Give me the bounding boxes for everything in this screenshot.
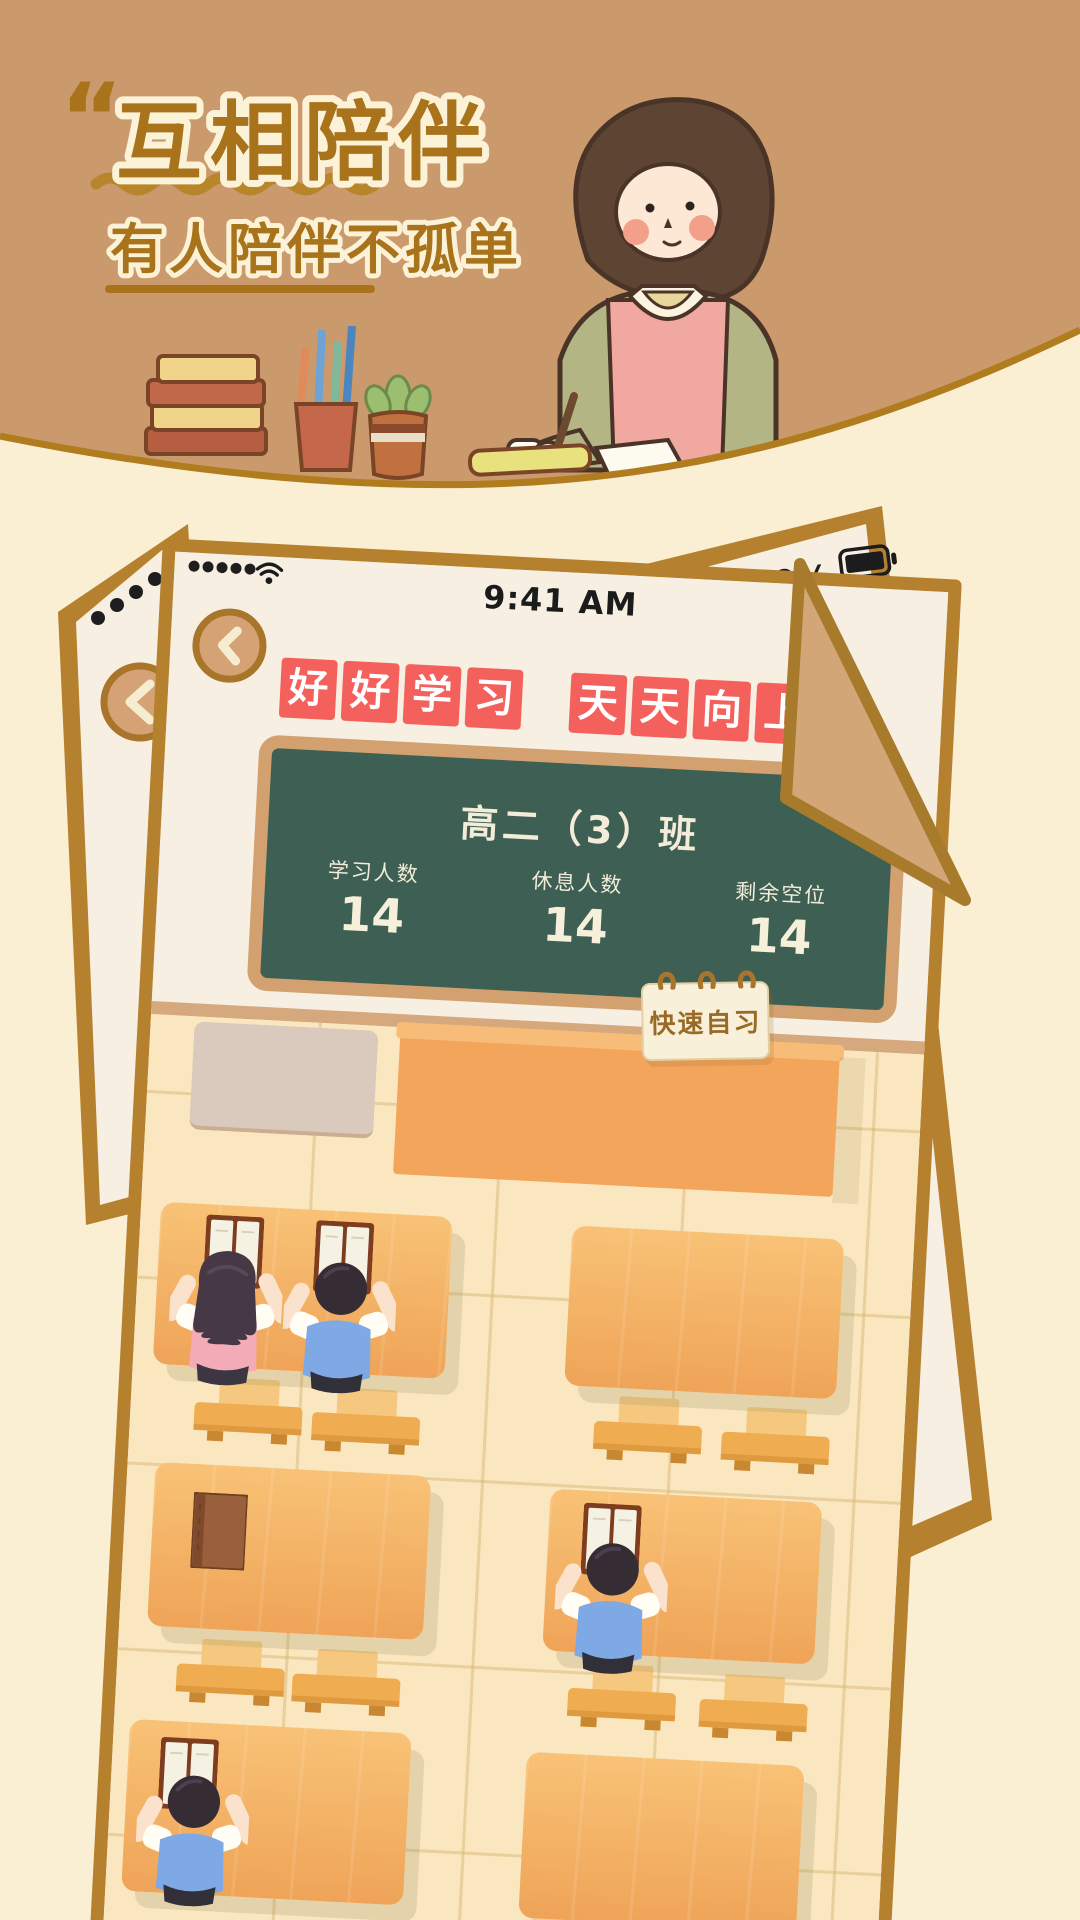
chair	[586, 1395, 709, 1471]
stat-label: 休息人数	[517, 864, 638, 900]
stat-value: 14	[514, 896, 637, 957]
app-promo-screenshot: “ 互相陪伴 有人陪伴不孤单	[0, 0, 1080, 1920]
student-boy	[276, 1250, 403, 1396]
motto-banner: 好 好 学 习 天 天 向 上	[279, 657, 819, 745]
chevron-left-icon	[215, 625, 243, 666]
stat-resting: 休息人数 14	[514, 864, 638, 957]
chair	[692, 1672, 815, 1748]
chair	[714, 1405, 837, 1481]
stat-value: 14	[718, 907, 841, 968]
motto-tile: 上	[754, 682, 813, 745]
chair	[284, 1647, 407, 1723]
quick-study-button[interactable]: 快速自习	[641, 981, 770, 1061]
student-desk-row2-left[interactable]	[147, 1462, 431, 1640]
floor-mat	[189, 1021, 378, 1138]
chair	[169, 1637, 292, 1713]
student-desk-row1-right[interactable]	[564, 1225, 844, 1399]
back-button[interactable]	[191, 607, 269, 685]
motto-tile: 好	[341, 661, 400, 724]
stat-value: 14	[310, 885, 433, 946]
student-girl	[162, 1242, 289, 1388]
teacher-desk	[393, 1022, 840, 1197]
student-desk-row3-right[interactable]	[518, 1752, 804, 1920]
stat-empty-seats: 剩余空位 14	[718, 875, 842, 968]
motto-tile: 好	[279, 657, 338, 720]
classroom-chalkboard: 高二（3）班 学习人数 14 休息人数 14 剩余空位 14	[246, 734, 909, 1024]
student-boy	[547, 1531, 674, 1677]
stat-label: 剩余空位	[721, 875, 842, 911]
closed-book-icon	[190, 1492, 248, 1571]
stat-label: 学习人数	[313, 853, 434, 889]
chair	[304, 1386, 427, 1462]
motto-tile: 天	[568, 673, 627, 736]
student-boy	[129, 1763, 256, 1909]
phone-mockup: 9:41 AM 好 好 学 习 天 天 向 上 高二（3）班	[84, 538, 961, 1920]
quick-study-label: 快速自习	[649, 1002, 762, 1041]
motto-tile: 学	[403, 664, 462, 727]
phone-screen: 9:41 AM 好 好 学 习 天 天 向 上 高二（3）班	[98, 552, 948, 1920]
calendar-rings-icon	[642, 964, 766, 990]
motto-tile: 天	[630, 676, 689, 739]
status-time: 9:41 AM	[173, 562, 948, 640]
stat-studying: 学习人数 14	[310, 853, 434, 946]
motto-tile: 习	[465, 667, 524, 730]
motto-tile: 向	[692, 679, 751, 742]
